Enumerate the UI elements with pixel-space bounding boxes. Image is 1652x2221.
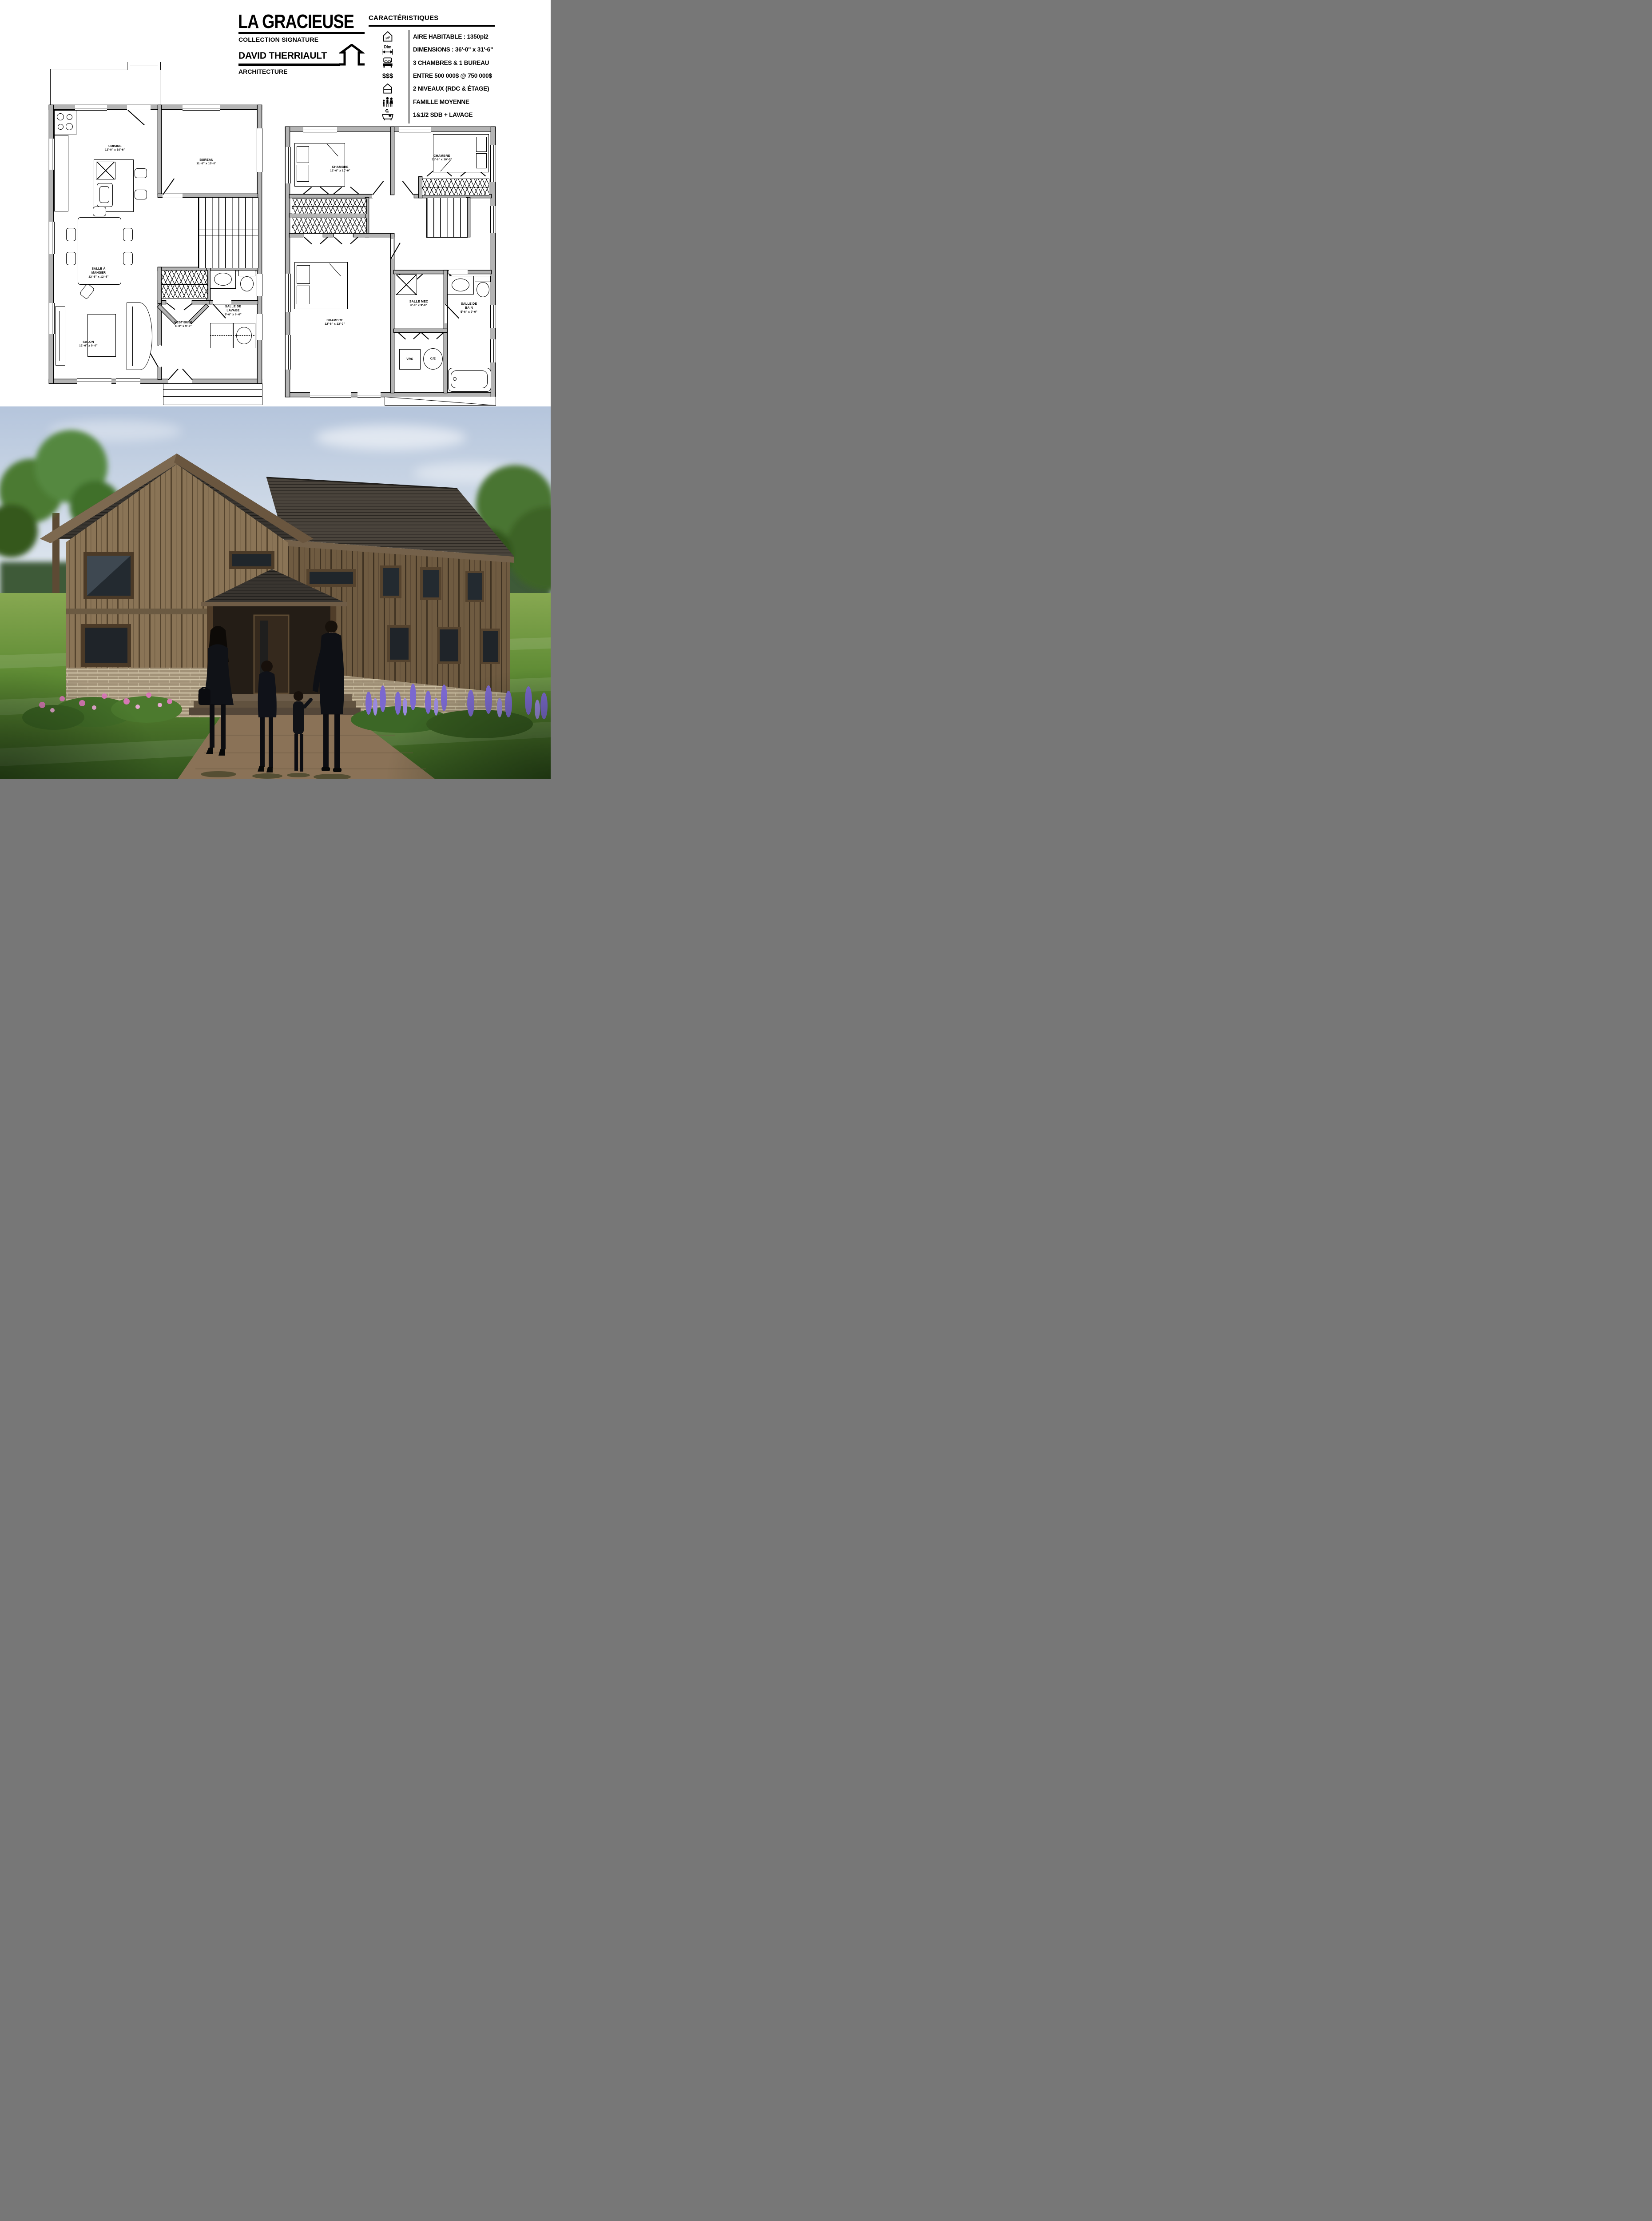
room-label-vestibule: VESTIBULE6'-0" x 9'-0" [174,321,192,329]
bifold-door-leaf [320,237,328,244]
room-label-salle-de-lavage: SALLE DE LAVAGE5'-6" x 9'-0" [219,305,247,317]
door-leaf [163,178,175,195]
characteristics-header: CARACTÉRISTIQUES [369,14,438,22]
characteristic-text: AIRE HABITABLE : 1350pi2 [407,33,488,40]
page-title: LA GRACIEUSE [238,11,354,33]
porch-step-line [163,389,262,390]
bathtub-icon [448,368,491,392]
toilet-tank [238,270,255,276]
room-label-chambre-2: CHAMBRE11'-6" x 10'-0" [432,154,452,162]
bifold-door-leaf [304,237,312,244]
pillow [476,137,487,152]
pillow [297,165,309,182]
room-label-salle-a-manger: SALLE À MANGER12'-6" x 12'-6" [84,267,113,279]
tub-drain [453,377,457,381]
chimney-inner-line [130,65,158,65]
window [303,127,337,132]
vignette [0,593,551,779]
room-label-bureau: BUREAU11'-6" x 10'-0" [196,158,216,166]
sofa-line [132,306,133,366]
room-label-salon: SALON12'-6" x 9'-0" [79,340,98,348]
blanket-fold [330,263,341,276]
door-opening [396,194,413,198]
window [490,305,496,328]
characteristic-text: 1&1/2 SDB + LAVAGE [407,111,473,118]
room-label-chambre-3: CHAMBRE12'-6" x 13'-0" [325,318,345,326]
window [116,378,140,384]
window [257,274,262,296]
dimensions-icon: Dim [369,44,407,55]
front-door-opening [168,378,192,383]
bifold-door-leaf [333,187,342,195]
pillow [297,146,309,163]
sofa-icon [127,303,152,370]
characteristics-underline [369,25,495,27]
characteristic-text: DIMENSIONS : 36'-0" x 31'-6" [407,46,493,53]
kitchen-island [94,159,134,212]
wall [323,234,333,237]
sink-icon [452,279,469,291]
closet-hanger-rod [422,179,489,195]
window [49,303,55,334]
bifold-door-leaf [166,303,175,310]
characteristic-row: 1&1/2 SDB + LAVAGE [369,108,506,121]
bathtub-icon [369,108,407,121]
tv-console [56,306,65,366]
bifold-door-leaf [436,332,444,339]
bed-icon [433,134,489,172]
window [490,145,496,182]
characteristic-text: ENTRE 500 000$ @ 750 000$ [407,72,492,79]
window [257,314,262,340]
stair-rail [199,235,258,235]
pillow [476,153,487,168]
appliance-dash-line [210,335,254,336]
svg-text:Dim: Dim [384,45,392,49]
window [285,147,291,183]
characteristic-text: FAMILLE MOYENNE [407,99,469,105]
wall [353,234,394,237]
door-leaf [402,181,414,195]
stair-rail [199,230,258,230]
toilet-tank [475,276,491,282]
window [75,105,107,111]
door-opening [159,345,161,367]
bifold-door-leaf [421,332,429,339]
window [183,105,220,111]
chair-icon [66,252,76,265]
room-label-cuisine: CUISINE12'-0" x 10'-6" [105,144,125,152]
characteristic-text: 2 NIVEAUX (RDC & ÉTAGE) [407,85,489,92]
bifold-door-leaf [303,187,312,195]
island-sink-icon [97,183,113,207]
closet-hanger-rod [292,218,367,234]
stool-icon [135,168,147,178]
burner [66,123,73,130]
chair-icon [79,283,95,299]
burner [58,124,64,130]
window [285,335,291,370]
staircase [426,198,468,238]
window [490,339,496,362]
chair-icon [123,252,133,265]
wall [419,177,422,198]
window [399,127,431,132]
burner [67,114,72,120]
burner [57,113,64,120]
architect-name: DAVID THERRIAULT [238,51,327,61]
window [490,206,496,233]
toilet-icon [477,282,489,297]
characteristic-row: pi² AIRE HABITABLE : 1350pi2 [369,30,506,43]
sink-basin [99,186,109,203]
bifold-door-leaf [350,187,359,194]
blanket-fold [327,143,338,156]
room-label-salle-mec: SALLE MEC6'-0" x 9'-0" [409,300,428,308]
dishwasher-icon [96,162,115,179]
linen-closet-icon [396,275,417,295]
roof-diagonal-line [385,397,495,406]
kitchen-counter [54,135,68,211]
stool-icon [135,190,147,199]
closet-hanger-rod [161,270,208,299]
chair-icon [66,228,76,241]
wall [158,267,161,304]
house-render-photo [0,406,551,779]
door-opening [213,300,231,304]
window [310,392,351,398]
window [257,128,262,172]
collection-subtitle: COLLECTION SIGNATURE [238,36,318,43]
pillow [297,286,310,304]
chair-icon [93,207,106,216]
pillow [297,265,310,284]
wall [391,127,394,195]
door-opening [445,304,447,323]
svg-text:$$$: $$$ [382,73,393,80]
porch-roof-outline [385,397,496,406]
vrc-unit: VRC [399,349,421,370]
door-leaf [372,181,384,195]
closet-hanger-rod [292,199,367,214]
price-icon: $$$ [369,70,407,81]
water-heater: C/E [423,348,443,370]
bed-icon [294,262,348,309]
staircase [198,197,258,268]
tv-line [60,311,60,361]
wall [290,195,372,198]
bifold-door-leaf [334,237,342,244]
ground-floor-plan: CUISINE12'-0" x 10'-6" BUREAU11'-6" x 10… [49,105,262,383]
toilet-icon [240,276,254,291]
vanity-counter [210,270,236,289]
vanity-counter [447,276,474,295]
upper-floor-plan: VRC C/E CHAMBRE12'-6" x 10'-0" [286,127,495,397]
bifold-door-leaf [320,187,329,194]
area-rug [87,314,116,357]
chair-icon [123,228,133,241]
wall [290,214,365,217]
house-arrow-logo-icon [339,44,365,66]
profession-label: ARCHITECTURE [238,68,287,75]
bifold-door-leaf [413,332,421,339]
wall [158,105,161,194]
bifold-door-leaf [398,332,406,339]
chimney-outline [127,62,161,70]
door-opening [163,194,183,198]
window [285,274,291,312]
door-leaf [127,110,144,125]
wall [158,367,161,379]
characteristic-row: Dim DIMENSIONS : 36'-0" x 31'-6" [369,43,506,56]
front-porch-steps [163,383,262,405]
window [49,222,55,254]
wall [192,301,210,304]
characteristic-text: 3 CHAMBRES & 1 BUREAU [407,60,489,66]
room-label-salle-de-bain: SALLE DE BAIN5'-6" x 9'-0" [457,302,481,314]
characteristic-row: FAMILLE MOYENNE [369,95,506,108]
wall [394,271,491,274]
bifold-door-leaf [350,237,358,244]
window [357,392,381,398]
door-opening [372,194,390,198]
vrc-label: VRC [406,357,413,361]
sink-icon [214,273,232,286]
wall [290,234,303,237]
stove-icon [54,110,76,135]
two-storey-house-icon [369,83,407,94]
title-underline [238,32,365,34]
area-house-icon: pi² [369,31,407,42]
plan-sheet: LA GRACIEUSE COLLECTION SIGNATURE DAVID … [0,0,551,779]
characteristic-row: $$$ ENTRE 500 000$ @ 750 000$ [369,69,506,82]
door-opening [127,105,151,110]
characteristic-row: 2 NIVEAUX (RDC & ÉTAGE) [369,82,506,95]
bed-icon [369,57,407,68]
porch-step-line [163,396,262,397]
window [77,378,111,384]
window [49,139,55,170]
family-icon [369,96,407,107]
author-underline [238,64,340,66]
svg-text:pi²: pi² [385,36,390,40]
water-heater-label: C/E [430,357,436,361]
bifold-door-leaf [183,303,192,310]
room-label-chambre-1: CHAMBRE12'-6" x 10'-0" [330,165,350,173]
driveway-outline [50,69,160,107]
characteristic-row: 3 CHAMBRES & 1 BUREAU [369,56,506,69]
